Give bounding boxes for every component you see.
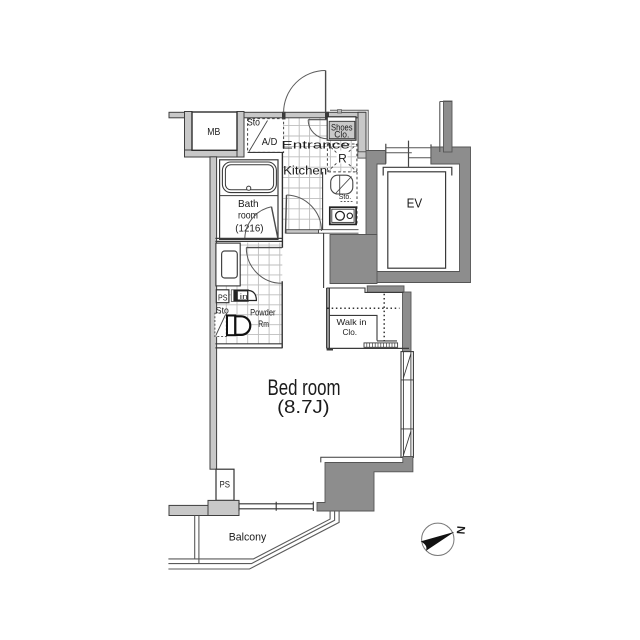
svg-text:R: R — [338, 152, 347, 166]
svg-text:(1216): (1216) — [235, 223, 263, 234]
svg-text:in: in — [240, 292, 248, 301]
svg-text:MB: MB — [207, 126, 220, 138]
svg-text:(8.7J): (8.7J) — [277, 396, 330, 417]
svg-text:PS: PS — [218, 293, 228, 303]
svg-text:Powder: Powder — [250, 307, 275, 317]
svg-text:Kitchen: Kitchen — [283, 166, 327, 178]
svg-text:Bath: Bath — [238, 199, 259, 210]
svg-text:EV: EV — [407, 196, 423, 211]
svg-text:A/D: A/D — [262, 136, 278, 148]
svg-text:Sto: Sto — [247, 118, 260, 129]
svg-text:Entrance: Entrance — [281, 140, 350, 152]
svg-text:PS: PS — [220, 480, 231, 490]
svg-text:N: N — [454, 525, 467, 534]
svg-text:Clo.: Clo. — [334, 129, 349, 139]
svg-text:Rm: Rm — [258, 319, 269, 329]
svg-text:Walk in: Walk in — [337, 317, 367, 327]
svg-text:Clo.: Clo. — [343, 327, 358, 337]
svg-text:Balcony: Balcony — [229, 532, 267, 544]
svg-text:Sto.: Sto. — [339, 192, 352, 201]
